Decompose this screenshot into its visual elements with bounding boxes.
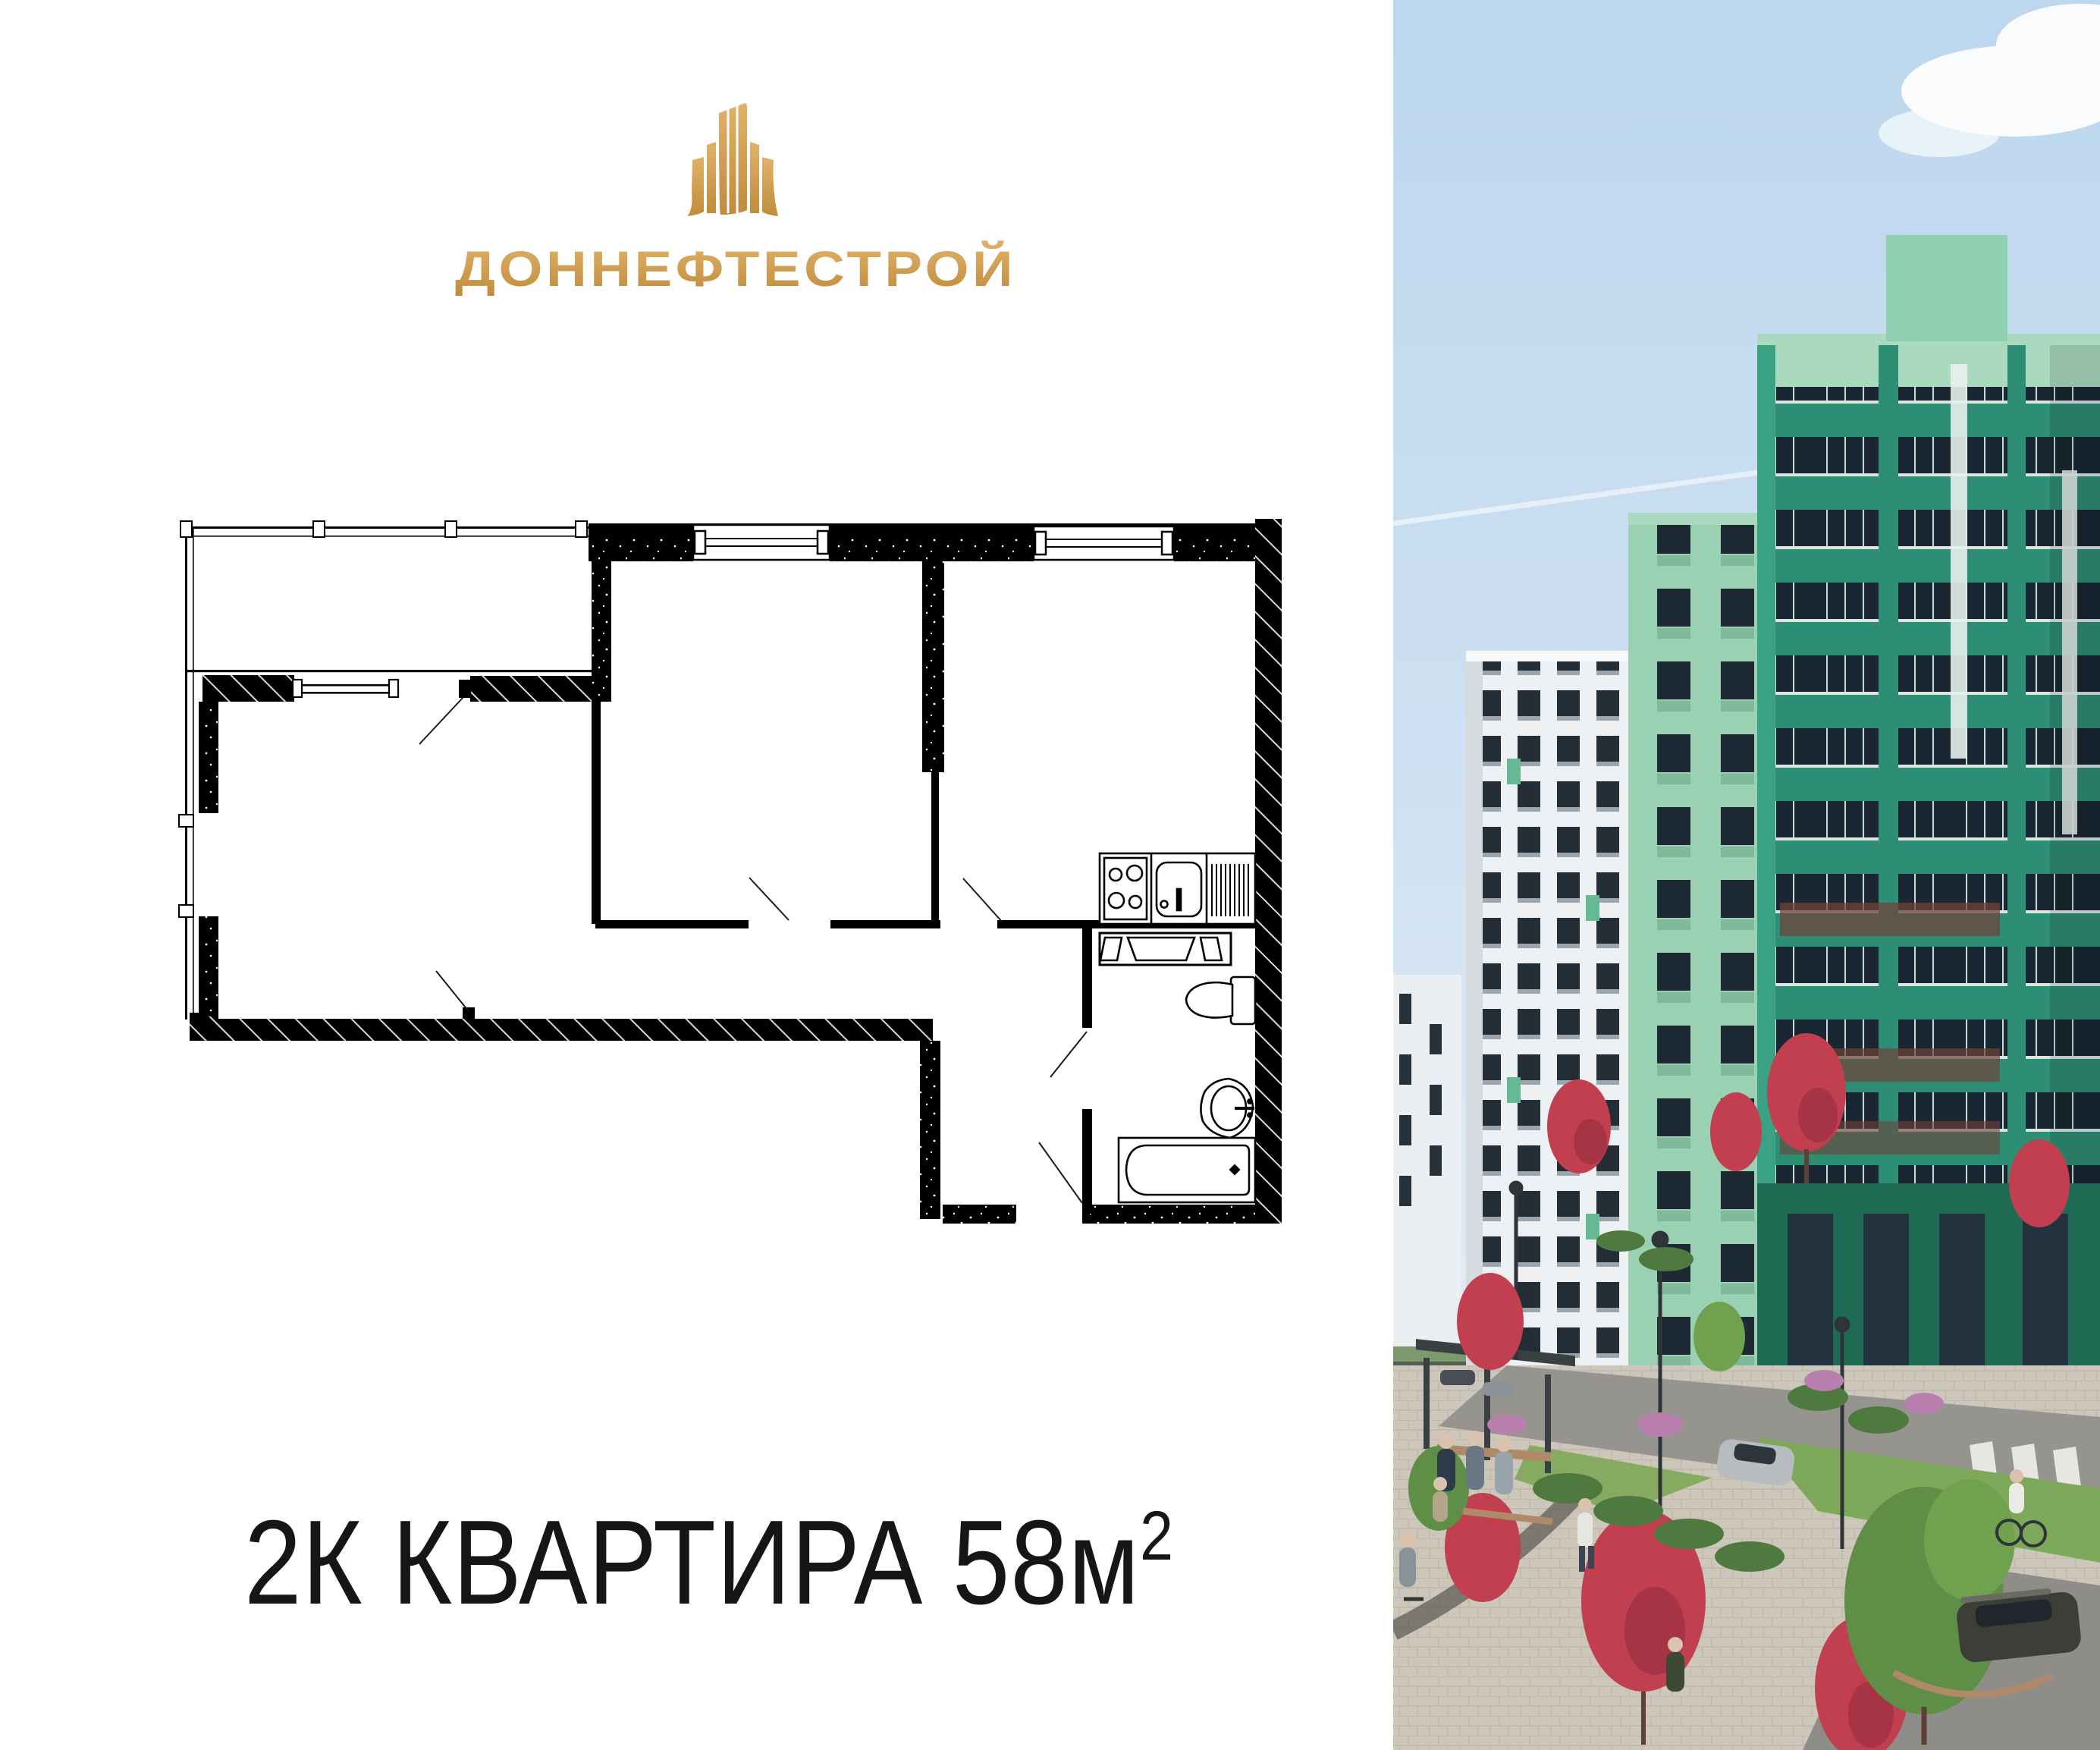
right-wall: [1255, 519, 1282, 1224]
sink-icon: [1157, 862, 1201, 916]
living-room-south-wall: [190, 1007, 933, 1041]
door-swings: [419, 697, 1087, 1203]
white-building-far: [1393, 975, 1461, 1346]
flyer-page: ДОННЕФТЕСТРОЙ: [0, 0, 2100, 1750]
sitting-woman: [1666, 1637, 1684, 1692]
left-panel: ДОННЕФТЕСТРОЙ: [0, 0, 1393, 1750]
headline: 2К КВАРТИРА 58м2: [244, 1500, 1173, 1626]
building-render: [1393, 0, 2100, 1750]
brand-logo: ДОННЕФТЕСТРОЙ: [425, 61, 1047, 417]
toilet-icon: [1186, 977, 1255, 1024]
brand-wordmark: ДОННЕФТЕСТРОЙ: [440, 239, 1031, 300]
bedroom-window: [693, 525, 830, 560]
bathtub-icon: [1119, 1138, 1255, 1202]
render-scene: [1393, 0, 2100, 1750]
dark-suv: [1955, 1588, 2082, 1664]
kitchen-window: [1034, 526, 1174, 560]
interior-walls: [199, 539, 1255, 1224]
white-tower: [1466, 651, 1633, 1368]
floor-plan: [174, 501, 1289, 1248]
balcony-partition: [185, 670, 598, 702]
kitchen-counter: [1100, 853, 1255, 924]
headline-superscript: 2: [1140, 1497, 1173, 1575]
vent-shaft-icon: [1100, 933, 1231, 965]
washbasin-icon: [1201, 1079, 1254, 1138]
headline-unit: м: [1069, 1496, 1140, 1629]
balcony-glazing: [179, 521, 590, 1020]
gold-buildings-icon: [676, 101, 798, 227]
stove-icon: [1104, 858, 1147, 919]
floor-plan-drawing: [174, 501, 1289, 1248]
headline-main: 2К КВАРТИРА 58: [244, 1496, 1069, 1629]
brand-name-text: ДОННЕФТЕСТРОЙ: [455, 240, 1016, 297]
